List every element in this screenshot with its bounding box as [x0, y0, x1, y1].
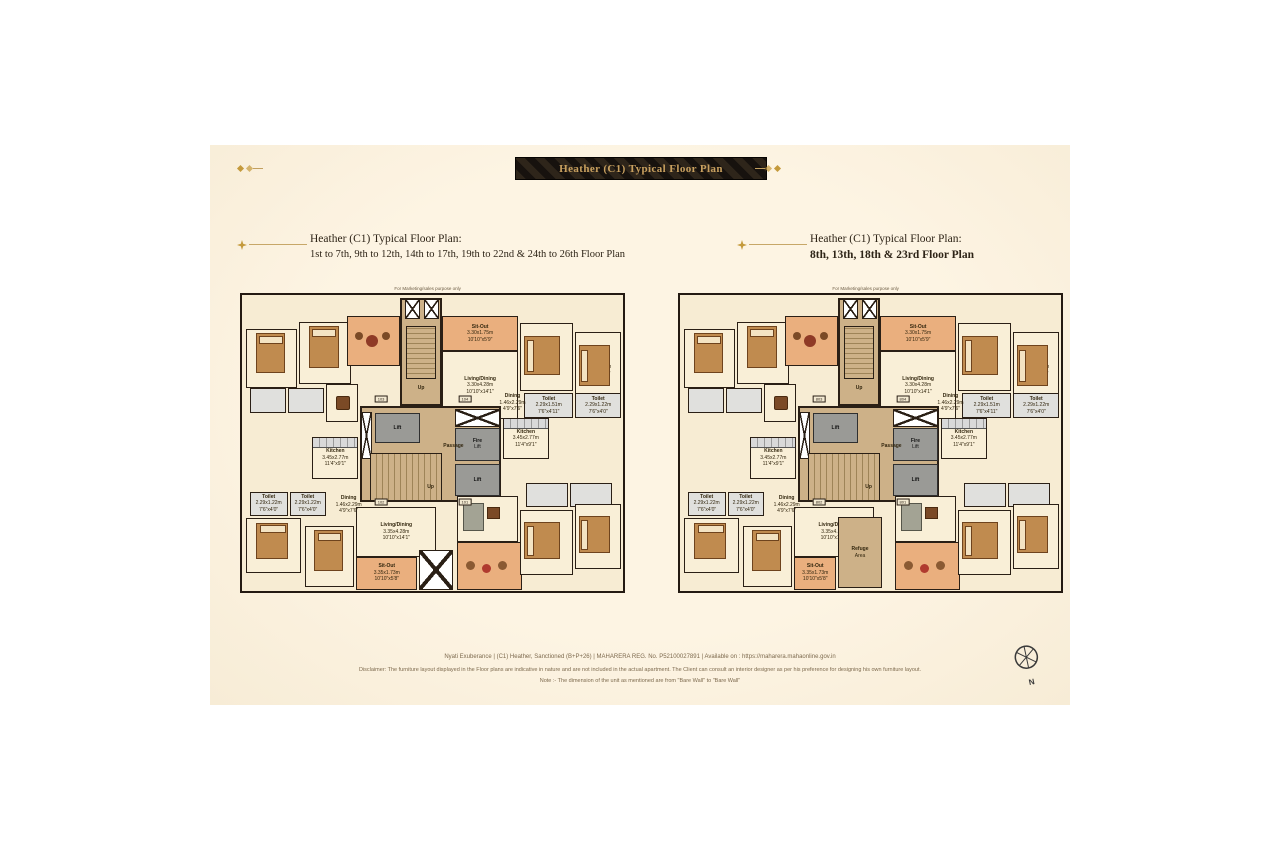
room-label: Lift [456, 465, 500, 496]
ac-ledge [893, 409, 939, 427]
kitchen: Kitchen3.45x2.77m11'4"x9'1" [312, 437, 358, 478]
staircase-upper [406, 326, 436, 379]
toilet: Toilet2.29x1.51m7'6"x4'11" [962, 393, 1012, 418]
sit-out [895, 542, 960, 589]
bed-v-furniture-icon [752, 530, 781, 571]
terrace [347, 316, 400, 366]
room-label: Toilet2.29x1.22m7'6"x4'0" [251, 493, 287, 515]
banner-ornament-icon [238, 164, 260, 172]
toilet [526, 483, 568, 507]
toilet: Toilet2.29x1.22m7'6"x4'0" [1013, 393, 1059, 418]
toilet [288, 388, 324, 413]
bedroom: Bed3.25x3.54m10'8"x11'7" [684, 518, 739, 573]
right-plan-title-line1: Heather (C1) Typical Floor Plan: [810, 233, 974, 245]
toilet: Toilet2.29x1.22m7'6"x4'0" [728, 492, 764, 516]
room-label: Up [410, 382, 433, 394]
up-label: Up [848, 382, 871, 394]
staircase [370, 453, 442, 500]
room-label: Sit-Out3.30x1.75m10'10"x5'9" [881, 317, 955, 351]
bedroom [737, 322, 788, 384]
flourish-icon [737, 240, 809, 250]
duct [361, 412, 372, 459]
table-furniture-icon [336, 396, 350, 410]
counter-furniture-icon [504, 419, 548, 429]
left-plan-title: Heather (C1) Typical Floor Plan: 1st to … [310, 233, 625, 260]
room-label: Toilet2.29x1.22m7'6"x4'0" [576, 394, 620, 417]
flourish-icon [237, 240, 309, 250]
room-label: Sit-Out3.35x1.73m10'10"x5'8" [357, 558, 416, 589]
counter-furniture-icon [313, 438, 357, 448]
toilet [726, 388, 762, 413]
room-label: Passage [431, 439, 477, 454]
unit-number-tag: 104 [459, 395, 472, 402]
sit-out [457, 542, 522, 589]
project-info-line: Nyati Exuberance | (C1) Heather, Sanctio… [210, 654, 1070, 660]
bedroom [1013, 504, 1059, 569]
bed-h-furniture-icon [579, 345, 610, 386]
sit-out: Sit-Out3.35x1.73m10'10"x5'8" [794, 557, 836, 590]
ornament-line [755, 168, 765, 169]
room-label: Lift [814, 414, 858, 442]
room-label: Sit-Out3.30x1.75m10'10"x5'9" [443, 317, 517, 351]
sofa-furniture-icon [463, 503, 484, 530]
service-void [419, 550, 453, 590]
lift: Lift [813, 413, 859, 443]
dining-label: Dining1.46x2.29m4'9"x7'6" [768, 492, 806, 519]
right-plan-title: Heather (C1) Typical Floor Plan: 8th, 13… [810, 233, 974, 261]
unit-number-tag: 101 [459, 499, 472, 506]
round-tables-furniture-icon [466, 561, 475, 570]
shaft [843, 299, 858, 318]
kitchen: Kitchen3.45x2.77m11'4"x9'1" [941, 418, 987, 459]
terrace [785, 316, 838, 366]
bedroom: Bed2.94x3.27m9'8"x10'9" [958, 323, 1011, 391]
lounge-furniture-icon [366, 335, 378, 347]
page-title-banner: Heather (C1) Typical Floor Plan [515, 157, 767, 180]
unit-number-tag: 803 [813, 395, 826, 402]
up-label: Up [857, 481, 880, 493]
room-label: Dining1.46x2.29m4'9"x7'6" [495, 390, 529, 417]
toilet: Toilet2.29x1.22m7'6"x4'0" [290, 492, 326, 516]
shaft [424, 299, 439, 318]
sit-out: Sit-Out3.35x1.73m10'10"x5'8" [356, 557, 417, 590]
toilet: Toilet2.29x1.22m7'6"x4'0" [250, 492, 288, 516]
diamond-icon [237, 165, 244, 172]
room-label: Toilet2.29x1.51m7'6"x4'11" [525, 394, 573, 417]
dining-label: Dining1.46x2.29m4'9"x7'6" [933, 390, 967, 417]
room-label: Sit-Out3.35x1.73m10'10"x5'8" [795, 558, 835, 589]
unit-number-tag: 802 [813, 499, 826, 506]
refuge-area: RefugeArea [838, 517, 882, 588]
table-furniture-icon [774, 396, 788, 410]
shaft [862, 299, 877, 318]
kitchen: Kitchen3.45x2.77m11'4"x9'1" [503, 418, 549, 459]
flourish-line [749, 244, 807, 245]
counter-furniture-icon [751, 438, 795, 448]
passage-label: Passage [431, 439, 477, 454]
bed-h-furniture-icon [1017, 516, 1048, 553]
brochure-page: Heather (C1) Typical Floor Plan Heather … [210, 145, 1070, 705]
dining-label: Dining1.46x2.29m4'9"x7'6" [495, 390, 529, 417]
room-label: Dining1.46x2.29m4'9"x7'6" [768, 492, 806, 519]
diamond-icon [246, 165, 253, 172]
room-label: Dining1.46x2.29m4'9"x7'6" [933, 390, 967, 417]
room-label: Toilet2.29x1.51m7'6"x4'11" [963, 394, 1011, 417]
unit-number-tag: 804 [897, 395, 910, 402]
lift: Lift [375, 413, 421, 443]
note-line: Note :- The dimension of the unit as men… [210, 678, 1070, 684]
bedroom: Bed3.25x3.54m10'8"x11'7" [246, 518, 301, 573]
ornament-line [253, 168, 263, 169]
bed-v-furniture-icon [309, 326, 339, 368]
north-compass-icon: N [1006, 640, 1050, 691]
dining-label: Dining1.46x2.29m4'9"x7'6" [330, 492, 368, 519]
bedroom: Bed2.94x3.27m9'8"x10'9" [305, 526, 355, 587]
page-title: Heather (C1) Typical Floor Plan [559, 163, 723, 175]
bed-v-furniture-icon [694, 333, 724, 373]
bedroom [575, 504, 621, 569]
lift: Lift [455, 464, 501, 497]
bed-h-furniture-icon [579, 516, 610, 553]
bedroom: Bed2.94x3.27m9'8"x10'9" [743, 526, 793, 587]
toilet: Toilet2.29x1.22m7'6"x4'0" [688, 492, 726, 516]
sofa-furniture-icon [901, 503, 922, 530]
bedroom [299, 322, 350, 384]
left-plan-title-line1: Heather (C1) Typical Floor Plan: [310, 233, 625, 245]
kitchen: Kitchen3.45x2.77m11'4"x9'1" [750, 437, 796, 478]
up-label: Up [419, 481, 442, 493]
floor-plan-right: For Marketing/sales purpose only Kitchen… [678, 293, 1063, 593]
room-label: Toilet2.29x1.22m7'6"x4'0" [1014, 394, 1058, 417]
bed-v-furniture-icon [314, 530, 343, 571]
bed-h-furniture-icon [1017, 345, 1048, 386]
round-tables-furniture-icon [904, 561, 913, 570]
room-label: RefugeArea [839, 518, 881, 587]
toilet: Toilet2.29x1.51m7'6"x4'11" [524, 393, 574, 418]
room-label: Up [419, 481, 442, 493]
bed-h-furniture-icon [962, 336, 998, 375]
shaft [405, 299, 420, 318]
diamond-icon [765, 165, 772, 172]
toilet: Toilet2.29x1.22m7'6"x4'0" [575, 393, 621, 418]
bed-h-furniture-icon [962, 522, 998, 559]
dining-area [764, 384, 796, 422]
unit-number-tag: 102 [375, 499, 388, 506]
diamond-icon [774, 165, 781, 172]
bedroom: Bed2.94x3.27m9'8"x10'9" [520, 323, 573, 391]
floor-plan-left: For Marketing/sales purpose only Kitchen… [240, 293, 625, 593]
sit-out: Sit-Out3.30x1.75m10'10"x5'9" [880, 316, 956, 352]
staircase-upper [844, 326, 874, 379]
flourish-line [249, 244, 307, 245]
bed-v-furniture-icon [256, 523, 288, 560]
sit-out: Sit-Out3.30x1.75m10'10"x5'9" [442, 316, 518, 352]
room-label: Passage [869, 439, 915, 454]
toilet [964, 483, 1006, 507]
room-label: Toilet2.29x1.22m7'6"x4'0" [689, 493, 725, 515]
bed-v-furniture-icon [694, 523, 726, 560]
lounge-furniture-icon [804, 335, 816, 347]
ac-ledge [455, 409, 501, 427]
passage-label: Passage [869, 439, 915, 454]
lift: Lift [893, 464, 939, 497]
dining-area [326, 384, 358, 422]
room-label: Dining1.46x2.29m4'9"x7'6" [330, 492, 368, 519]
bedroom [958, 510, 1011, 575]
room-label: Toilet2.29x1.22m7'6"x4'0" [291, 493, 325, 515]
disclaimer-line: Disclaimer: The furniture layout display… [210, 667, 1070, 673]
room-label: Up [848, 382, 871, 394]
unit-number-tag: 103 [375, 395, 388, 402]
star-icon [737, 240, 747, 250]
left-plan-title-line2: 1st to 7th, 9th to 12th, 14th to 17th, 1… [310, 249, 625, 260]
bedroom [246, 329, 297, 388]
duct [799, 412, 810, 459]
marketing-note: For Marketing/sales purpose only [832, 286, 899, 291]
right-plan-title-line2: 8th, 13th, 18th & 23rd Floor Plan [810, 249, 974, 261]
counter-furniture-icon [942, 419, 986, 429]
room-label: Lift [376, 414, 420, 442]
room-label: Toilet2.29x1.22m7'6"x4'0" [729, 493, 763, 515]
unit-number-tag: 801 [897, 499, 910, 506]
bedroom [520, 510, 573, 575]
banner-ornament-icon [758, 164, 780, 172]
up-label: Up [410, 382, 433, 394]
toilet [250, 388, 286, 413]
bedroom [684, 329, 735, 388]
bed-h-furniture-icon [524, 522, 560, 559]
toilet [688, 388, 724, 413]
room-label: Lift [894, 465, 938, 496]
bed-v-furniture-icon [256, 333, 286, 373]
compass-graphic [1007, 640, 1047, 678]
room-label: Up [857, 481, 880, 493]
staircase [808, 453, 880, 500]
star-icon [237, 240, 247, 250]
bed-v-furniture-icon [747, 326, 777, 368]
bed-h-furniture-icon [524, 336, 560, 375]
marketing-note: For Marketing/sales purpose only [394, 286, 461, 291]
